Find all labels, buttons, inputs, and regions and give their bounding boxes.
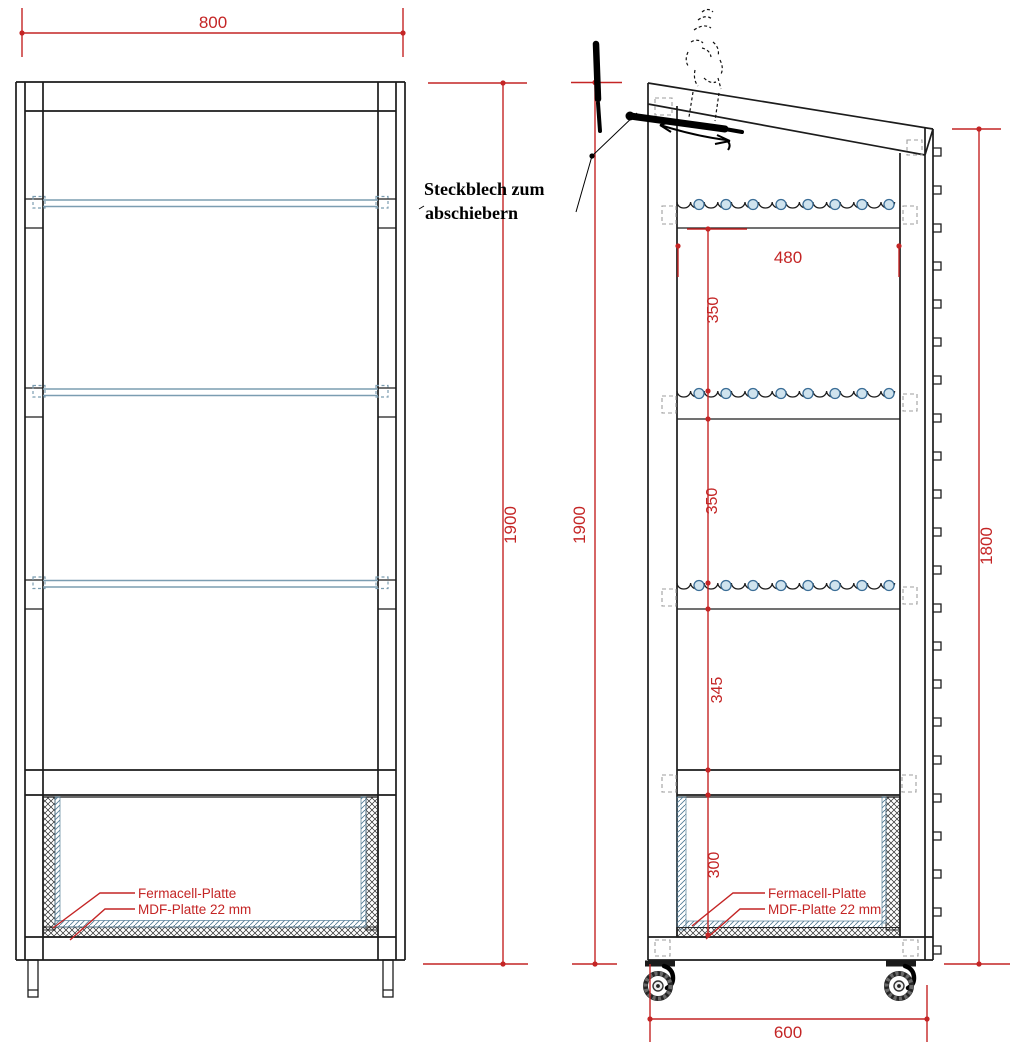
dim-label-gap4: 300 — [706, 852, 723, 879]
side-shelf-2 — [662, 389, 917, 420]
dimension-inner-width: 480 — [675, 243, 901, 277]
front-fermacell-label: Fermacell-Platte — [138, 886, 236, 901]
dim-label-depth: 600 — [774, 1023, 802, 1042]
front-fermacell-left-hatch — [55, 797, 60, 921]
dim-label-gap3: 345 — [709, 677, 726, 704]
dim-label-gap2: 350 — [704, 488, 721, 515]
front-feet — [28, 960, 393, 997]
dim-label-front-width: 800 — [199, 13, 227, 32]
dim-label-inner-width: 480 — [774, 248, 802, 267]
side-mdf-label: MDF-Platte 22 mm — [768, 902, 881, 917]
side-fermacell-left-hatch — [677, 797, 686, 930]
cabinet-drawing-svg: 800 1900 1900 1800 480 350 350 345 300 — [0, 0, 1024, 1057]
front-mdf-label: MDF-Platte 22 mm — [138, 902, 251, 917]
steckblech-line2: abschiebern — [425, 203, 518, 223]
front-shelf-1 — [33, 197, 388, 209]
side-shelf-1 — [662, 200, 917, 229]
dimension-side-height: 1900 — [570, 80, 622, 967]
dim-label-back-height: 1800 — [977, 527, 996, 565]
front-mdf-left-hatch — [43, 797, 55, 930]
front-mdf-right-hatch — [366, 797, 378, 930]
front-frame-horizontals — [16, 82, 405, 960]
front-frame-verticals — [16, 82, 405, 960]
caster-right — [886, 961, 916, 999]
dim-label-side-height: 1900 — [570, 506, 589, 544]
side-shelf-3 — [662, 581, 917, 610]
front-view — [16, 82, 405, 997]
side-mdf-right-hatch — [886, 797, 900, 930]
dimension-depth: 600 — [647, 964, 929, 1042]
dimension-front-width: 800 — [19, 8, 405, 57]
side-fermacell-label: Fermacell-Platte — [768, 886, 866, 901]
front-shelf-2 — [33, 386, 388, 398]
dimension-back-height: 1800 — [944, 126, 1010, 966]
dim-label-front-height: 1900 — [501, 506, 520, 544]
side-view — [645, 83, 941, 999]
front-post-ticks — [25, 199, 396, 609]
technical-drawing: 800 1900 1900 1800 480 350 350 345 300 — [0, 0, 1024, 1057]
tray-sketch — [589, 44, 742, 159]
back-panel-notches — [933, 148, 941, 954]
side-fermacell-right-hatch — [882, 797, 886, 923]
front-fermacell-right-hatch — [361, 797, 366, 921]
front-fermacell-bottom-hatch — [55, 921, 366, 928]
front-shelf-3 — [33, 577, 388, 589]
annotation-steckblech: Steckblech zum abschiebern — [419, 113, 637, 223]
dim-label-gap1: 350 — [705, 297, 722, 324]
steckblech-line1: Steckblech zum — [424, 179, 545, 199]
side-fermacell-bottom-hatch — [686, 921, 882, 928]
front-mdf-bottom-hatch — [43, 927, 378, 937]
hand-sketch — [686, 10, 722, 122]
